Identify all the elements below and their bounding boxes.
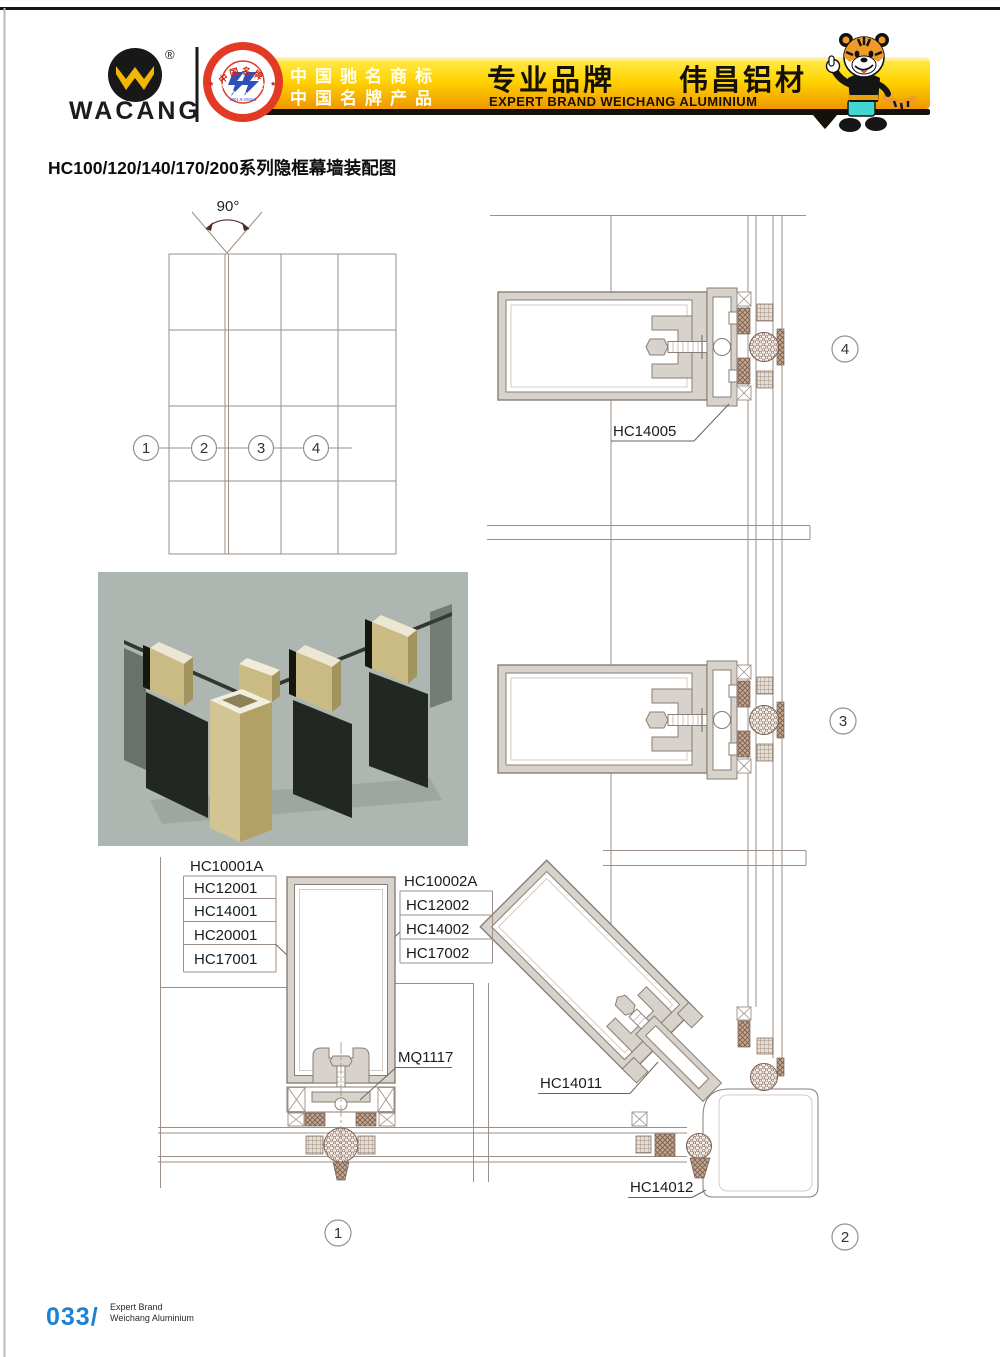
detail-3-callout[interactable]: 3 <box>830 708 856 734</box>
part-label-mq1117: MQ1117 <box>398 1049 453 1066</box>
part-label-hc14002: HC14002 <box>406 921 469 938</box>
banner-black-band <box>258 109 930 115</box>
banner-main-cn: 专业品牌 伟昌铝材 <box>487 63 807 97</box>
page-number: 033/ <box>46 1303 99 1331</box>
part-label-hc17001: HC17001 <box>194 951 257 968</box>
angle-annotation: 90° <box>192 198 262 253</box>
brand-name: WACANG <box>69 97 201 125</box>
detail-4-callout[interactable]: 4 <box>832 336 858 362</box>
tiger-belt <box>848 95 878 100</box>
badge-star-left: ★ <box>208 80 214 88</box>
part-label-hc14012: HC14012 <box>630 1179 693 1196</box>
detail-1-callout[interactable]: 1 <box>325 1220 351 1246</box>
banner-notch <box>813 115 837 129</box>
part-label-hc14001: HC14001 <box>194 903 257 920</box>
catalog-page: ® WACANG 中国驰名商标 中国名牌产品 专业品牌 伟昌铝材 EXPERT … <box>0 0 1000 1357</box>
part-label-hc14005: HC14005 <box>613 423 676 440</box>
page-title: HC100/120/140/170/200系列隐框幕墙装配图 <box>48 158 396 178</box>
footer-tagline-2: Weichang Aluminium <box>110 1313 194 1323</box>
detail-1-left-part-table: HC10001A HC12001 HC14001 HC20001 HC17001 <box>184 858 290 972</box>
svg-text:3: 3 <box>257 440 265 457</box>
svg-text:4: 4 <box>312 440 320 457</box>
header: ® WACANG 中国驰名商标 中国名牌产品 专业品牌 伟昌铝材 EXPERT … <box>69 33 930 132</box>
svg-text:2: 2 <box>200 440 208 457</box>
detail-3: 3 <box>498 661 856 779</box>
footer: 033/ Expert Brand Weichang Aluminium <box>46 1302 194 1331</box>
part-label-hc12002: HC12002 <box>406 897 469 914</box>
elevation-callouts: 1 2 3 4 <box>134 436 353 461</box>
svg-text:4: 4 <box>841 341 849 358</box>
corner-adapter <box>636 1016 722 1102</box>
sealant-joint-horizontal <box>687 1134 712 1159</box>
elevation-grid <box>169 254 396 554</box>
corner-post <box>703 1089 818 1197</box>
callout-1[interactable]: 1 <box>134 436 159 461</box>
banner-line2: 中国名牌产品 <box>290 88 440 108</box>
detail-1-right-part-table: HC10002A HC12002 HC14002 HC17002 <box>387 873 493 963</box>
detail-3-section <box>498 661 784 779</box>
callout-4[interactable]: 4 <box>304 436 329 461</box>
page-canvas: ® WACANG 中国驰名商标 中国名牌产品 专业品牌 伟昌铝材 EXPERT … <box>0 0 1000 1357</box>
part-label-hc12001: HC12001 <box>194 880 257 897</box>
svg-text:1: 1 <box>142 440 150 457</box>
footer-tagline-1: Expert Brand <box>110 1302 163 1312</box>
tiger-nose <box>861 58 868 63</box>
banner-sub-en: EXPERT BRAND WEICHANG ALUMINIUM <box>489 94 757 109</box>
detail-4: HC14005 4 <box>498 288 858 441</box>
callout-3[interactable]: 3 <box>249 436 274 461</box>
tiger-shoe-right <box>865 117 887 131</box>
sealant-joint-vertical <box>751 1064 778 1091</box>
part-label-hc10002a: HC10002A <box>404 873 477 890</box>
corner-render-image <box>98 572 468 846</box>
vertical-mullion-section <box>287 877 395 1180</box>
part-label-hc10001a: HC10001A <box>190 858 263 875</box>
part-label-hc17002: HC17002 <box>406 945 469 962</box>
china-top-brand-badge: 2001.9-2004.9 中国名牌 CHINA TOP BRAND ★ ★ <box>203 42 283 122</box>
svg-text:1: 1 <box>334 1225 342 1242</box>
tiger-shorts <box>848 100 875 116</box>
banner-line1: 中国驰名商标 <box>290 66 440 86</box>
detail-2-callout[interactable]: 2 <box>832 1224 858 1250</box>
callout-2[interactable]: 2 <box>192 436 217 461</box>
part-label-hc14011: HC14011 <box>540 1075 602 1092</box>
tiger-ear-right-inner <box>879 37 886 44</box>
svg-text:2: 2 <box>841 1229 849 1246</box>
detail-2: HC14011 HC14012 2 <box>480 860 858 1250</box>
registered-mark: ® <box>165 47 175 62</box>
tiger-shoe-left <box>839 118 861 132</box>
angle-label: 90° <box>217 198 240 215</box>
detail-4-section <box>498 288 784 406</box>
tiger-thumb <box>829 56 834 66</box>
part-label-hc20001: HC20001 <box>194 927 257 944</box>
elevation-diagram: 90° 1 2 3 4 <box>134 198 397 554</box>
badge-star-right: ★ <box>270 80 276 88</box>
svg-text:3: 3 <box>839 713 847 730</box>
tiger-ear-left-inner <box>843 37 850 44</box>
wacang-logo: ® WACANG <box>69 47 201 125</box>
detail-1: HC10001A HC12001 HC14001 HC20001 HC17001… <box>184 858 493 1246</box>
